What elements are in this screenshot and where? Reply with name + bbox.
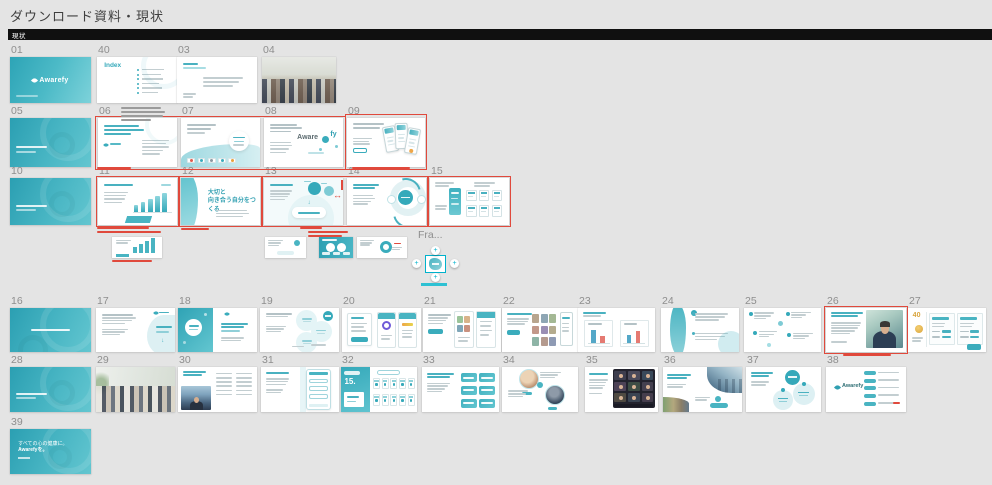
text-line — [216, 377, 232, 378]
banner-shape — [116, 254, 129, 257]
text-line — [751, 384, 766, 386]
text-line — [463, 402, 474, 404]
group-photo — [96, 386, 175, 412]
frame-label[interactable]: 17 — [97, 295, 109, 307]
slide-thumbnail[interactable] — [342, 308, 421, 352]
decor-dot — [183, 341, 186, 344]
slide-thumbnail[interactable] — [10, 118, 91, 167]
text-line — [942, 336, 951, 339]
frame-label[interactable]: 36 — [664, 354, 676, 366]
text-line — [266, 384, 286, 386]
cta-button — [428, 329, 444, 334]
slide-thumbnail[interactable] — [261, 367, 339, 412]
canvas-frame-03[interactable]: 03 — [177, 57, 257, 103]
text-line — [216, 373, 232, 374]
photo-tile — [457, 325, 463, 332]
slide-thumbnail[interactable] — [10, 178, 91, 225]
selected-frame-name[interactable] — [421, 283, 447, 286]
video-toolbar — [614, 404, 653, 407]
add-frame-handle-bottom[interactable]: + — [431, 273, 440, 282]
annotation-text[interactable] — [181, 228, 261, 244]
text-line — [932, 326, 943, 328]
canvas-frame-27[interactable]: 2740 — [908, 308, 986, 352]
video-tile — [614, 393, 626, 403]
annotation-red-box[interactable] — [262, 176, 428, 227]
cta-tile — [461, 386, 477, 395]
annotation-line — [308, 231, 348, 233]
annotation-text[interactable] — [843, 354, 923, 370]
text-line — [540, 374, 558, 376]
text-line — [183, 63, 197, 65]
frame-label[interactable]: 22 — [503, 295, 515, 307]
text-line — [878, 387, 899, 389]
canvas-title[interactable]: ダウンロード資料・現状 — [10, 6, 164, 25]
frame-label[interactable]: 32 — [342, 354, 354, 366]
frame-label[interactable]: 31 — [262, 354, 274, 366]
text-line — [589, 382, 607, 384]
text-line — [381, 338, 390, 340]
annotation-red-box[interactable] — [428, 176, 511, 227]
canvas-frame-35[interactable]: 35 — [585, 367, 658, 412]
text-line — [410, 383, 413, 386]
text-line — [878, 394, 899, 396]
canvas-frame-30[interactable]: 30 — [178, 367, 257, 412]
note-dot — [767, 343, 771, 347]
photo-tile — [532, 326, 539, 335]
text-line — [463, 377, 474, 379]
text-line — [16, 151, 35, 153]
decor-dot — [537, 382, 543, 388]
text-line — [302, 340, 313, 342]
canvas-frame-38[interactable]: 38Awarefy — [826, 367, 906, 412]
chart-card — [584, 320, 613, 346]
leaf-pattern-ring — [49, 191, 75, 217]
annotation-text[interactable] — [97, 167, 177, 183]
slide-thumbnail[interactable] — [178, 308, 257, 352]
frame-label[interactable]: 10 — [11, 165, 23, 177]
slide-thumbnail[interactable] — [260, 308, 339, 352]
photo-tile — [457, 316, 463, 323]
text-line — [589, 385, 605, 387]
logo-row: Awarefy — [10, 74, 91, 86]
blob-shape: ↓ — [147, 315, 175, 352]
bar-chart-bar — [145, 241, 149, 253]
pill — [343, 252, 350, 255]
text-line — [221, 326, 245, 328]
list-tag — [864, 386, 876, 390]
slide-thumbnail[interactable] — [10, 367, 91, 412]
text-line — [236, 377, 252, 378]
frame-label[interactable]: 33 — [423, 354, 435, 366]
ui-row — [309, 379, 328, 384]
bullet-dot — [137, 69, 139, 71]
chart-axis — [588, 343, 610, 344]
decor-ring — [141, 57, 177, 89]
text-line — [458, 340, 469, 342]
text-line — [427, 376, 450, 378]
text-line — [393, 399, 396, 402]
annotation-text[interactable] — [112, 260, 192, 276]
decor-dot — [294, 240, 300, 246]
canvas-frame-24[interactable]: 24 — [661, 308, 739, 352]
annotation-line — [97, 167, 131, 169]
text-line — [428, 323, 444, 325]
text-line — [102, 329, 129, 331]
photo-tile — [541, 337, 548, 346]
text-line — [779, 401, 787, 402]
canvas-frame-28[interactable]: 28 — [10, 367, 91, 412]
text-line — [360, 244, 370, 246]
video-call-window — [613, 369, 655, 409]
person-face — [646, 385, 650, 389]
text-line — [268, 240, 283, 242]
canvas-frame-18[interactable]: 18 — [178, 308, 257, 352]
slide-thumbnail[interactable] — [178, 367, 257, 412]
note-dot — [749, 312, 753, 316]
stat-mini-card — [382, 394, 389, 406]
text-line — [384, 399, 387, 402]
text-line — [507, 323, 525, 325]
cta-tile — [461, 399, 477, 408]
phone-mockup — [398, 312, 417, 348]
cta-tile — [461, 373, 477, 382]
text-line — [960, 326, 971, 328]
frame-label[interactable]: 04 — [263, 44, 275, 56]
canvas-frame-05[interactable]: 05 — [10, 118, 91, 167]
canvas-frame-31[interactable]: 31 — [261, 367, 339, 412]
form-card — [347, 313, 372, 346]
frame-label[interactable]: Fra... — [418, 229, 443, 241]
annotation-text[interactable] — [352, 167, 432, 183]
annotation-text[interactable] — [97, 227, 177, 243]
text-line — [970, 330, 979, 333]
person-face — [646, 396, 650, 400]
figma-canvas[interactable]: ダウンロード資料・現状 現状 01Awarefy40Index030405060… — [0, 0, 992, 485]
add-frame-handle-right[interactable]: + — [450, 259, 459, 268]
awarefy-logo-icon — [225, 312, 231, 318]
avatar-photo — [519, 369, 539, 389]
text-line — [893, 402, 899, 404]
note-dot — [778, 321, 783, 326]
frame-label[interactable]: 25 — [745, 295, 757, 307]
canvas-frame-25[interactable]: 25 — [744, 308, 821, 352]
name-pill — [548, 407, 558, 410]
text-line — [351, 323, 367, 325]
text-line — [751, 372, 774, 374]
text-line — [912, 340, 921, 342]
person-face — [632, 374, 636, 378]
text-line — [236, 390, 252, 391]
text-line — [216, 381, 232, 382]
slide-thumbnail[interactable]: すべての心の健康に。Awarefyを。 — [10, 429, 91, 474]
canvas-frame-16[interactable]: 16 — [10, 308, 91, 352]
price-card — [929, 313, 955, 345]
canvas-frame-10[interactable]: 10 — [10, 178, 91, 225]
canvas-frame-19[interactable]: 19 — [260, 308, 339, 352]
decor-circle — [718, 331, 739, 352]
text-line — [325, 315, 331, 317]
slide-thumbnail[interactable] — [744, 308, 821, 352]
slide-thumbnail[interactable] — [177, 57, 257, 103]
stat-panel: 15. — [341, 367, 370, 412]
add-frame-handle-top[interactable]: + — [431, 246, 440, 255]
bullet-dot — [137, 92, 139, 94]
frame-label[interactable]: 03 — [178, 44, 190, 56]
text-line — [428, 320, 447, 322]
text-line — [266, 389, 283, 391]
cta-button — [967, 344, 981, 350]
text-line — [624, 323, 638, 325]
canvas-frame-40[interactable]: 40Index — [97, 57, 177, 103]
section-label: 現状 — [8, 30, 26, 40]
canvas-frame-36[interactable]: 36 — [663, 367, 742, 412]
text-line — [427, 383, 450, 385]
person-photo — [181, 386, 211, 410]
text-line — [142, 92, 158, 94]
text-line — [216, 394, 232, 395]
annotation-red-box[interactable] — [95, 116, 346, 170]
text-line — [932, 336, 940, 338]
text-line — [751, 375, 769, 377]
closing-line2: Awarefyを。 — [18, 446, 47, 453]
text-line — [16, 146, 47, 148]
frame-label[interactable]: 34 — [503, 354, 515, 366]
frame-label[interactable]: 21 — [424, 295, 436, 307]
text-line — [791, 317, 802, 318]
slide-thumbnail[interactable] — [578, 308, 655, 352]
text-line — [507, 321, 528, 323]
canvas-frame-33[interactable]: 33 — [422, 367, 499, 412]
stat-mini-card — [399, 394, 406, 406]
slide-thumbnail[interactable]: Awarefy — [826, 367, 906, 412]
text-line — [374, 396, 378, 398]
photo-tile — [549, 326, 556, 335]
person-face — [619, 374, 623, 378]
price-card — [957, 313, 983, 345]
text-line — [409, 396, 413, 398]
slide-thumbnail[interactable]: 15. — [341, 367, 417, 412]
pill-outline — [377, 370, 400, 375]
annotation-red-box[interactable] — [824, 306, 908, 354]
donut-chart — [382, 321, 391, 330]
phone-mockup — [377, 312, 396, 348]
annotation-red-box[interactable] — [96, 176, 179, 227]
decor-dot — [802, 382, 806, 386]
text-line — [960, 336, 968, 338]
frame-label[interactable]: 35 — [586, 354, 598, 366]
annotation-red-box[interactable] — [345, 114, 427, 170]
slide-thumbnail[interactable] — [661, 308, 739, 352]
slide-thumbnail[interactable] — [663, 367, 742, 412]
text-line — [159, 312, 168, 314]
cta-tile — [479, 386, 495, 395]
text-line — [392, 249, 400, 250]
text-line — [695, 399, 708, 401]
text-line — [266, 331, 282, 333]
note-dot — [787, 333, 791, 337]
canvas-frame-23[interactable]: 23 — [578, 308, 655, 352]
text-line — [751, 381, 769, 383]
text-line — [562, 323, 569, 324]
text-line — [754, 315, 771, 317]
text-line — [347, 401, 356, 403]
text-line — [393, 383, 396, 386]
text-line — [402, 333, 412, 335]
photo-tile — [532, 337, 539, 346]
bullet-dot — [137, 74, 139, 76]
text-line — [316, 330, 327, 332]
cta-button — [507, 330, 521, 335]
selected-frame-thumbnail[interactable] — [426, 256, 445, 272]
frame-label[interactable]: 19 — [261, 295, 273, 307]
diagram-circle — [326, 243, 335, 252]
text-line — [589, 393, 602, 394]
cta-tile — [479, 373, 495, 382]
video-tile — [628, 371, 640, 381]
annotation-line — [181, 228, 209, 230]
text-line — [302, 318, 313, 320]
frame-label[interactable]: 23 — [579, 295, 591, 307]
stat-card — [344, 392, 364, 406]
slide-thumbnail[interactable] — [10, 308, 91, 352]
text-line — [589, 373, 608, 375]
text-line — [266, 378, 289, 380]
bullet-dot — [137, 78, 139, 80]
slide-thumbnail[interactable] — [502, 308, 578, 352]
slide-thumbnail[interactable] — [262, 57, 336, 103]
phone-header — [399, 313, 416, 319]
text-line — [400, 396, 404, 398]
arrow-down-icon: ↓ — [161, 338, 164, 344]
text-line — [427, 385, 449, 387]
stat-mini-card — [382, 378, 389, 390]
text-line — [236, 394, 252, 395]
slide-thumbnail[interactable] — [423, 308, 501, 352]
canvas-frame-04[interactable]: 04 — [262, 57, 336, 103]
text-line — [778, 398, 788, 400]
diagram-circle — [793, 383, 815, 405]
list-tag — [864, 394, 876, 398]
canvas-frame-29[interactable]: 29 — [96, 367, 175, 412]
text-line — [266, 328, 285, 330]
text-line — [16, 393, 47, 395]
text-line — [183, 93, 196, 95]
text-line — [375, 383, 378, 386]
stat-mini-card — [399, 378, 406, 390]
leaf-pattern-ring — [48, 445, 72, 469]
text-line — [16, 209, 35, 211]
text-line — [791, 314, 806, 316]
canvas-frame-32[interactable]: 3215. — [341, 367, 417, 412]
text-line — [583, 315, 601, 317]
section-bar[interactable]: 現状 — [8, 29, 992, 40]
text-line — [589, 387, 604, 389]
text-line — [351, 330, 366, 332]
frame-label[interactable]: 28 — [11, 354, 23, 366]
text-line — [351, 317, 365, 319]
slide-thumbnail[interactable]: Index — [97, 57, 177, 103]
phone-mockup — [560, 312, 573, 345]
frame-label[interactable]: 24 — [662, 295, 674, 307]
slide-thumbnail[interactable] — [502, 367, 578, 412]
canvas-frame-17[interactable]: 17↓ — [96, 308, 175, 352]
text-line — [912, 337, 923, 339]
slide-thumbnail[interactable]: Awarefy — [10, 57, 91, 103]
person-face — [632, 385, 636, 389]
annotation-red-box[interactable] — [179, 176, 262, 227]
canvas-frame-20[interactable]: 20 — [342, 308, 421, 352]
text-line — [695, 397, 711, 399]
bullet-dot — [137, 87, 139, 89]
bar-chart-bar — [133, 247, 137, 253]
frame-label[interactable]: 27 — [909, 295, 921, 307]
frame-label[interactable]: 20 — [343, 295, 355, 307]
frame-label[interactable]: 39 — [11, 416, 23, 428]
frame-label[interactable]: 29 — [97, 354, 109, 366]
bar-chart-bar — [636, 331, 640, 344]
swap-arrow-icon[interactable]: ↔ — [333, 190, 342, 200]
frame-label[interactable]: 30 — [179, 354, 191, 366]
slide-thumbnail[interactable] — [422, 367, 499, 412]
canvas-frame-39[interactable]: 39すべての心の健康に。Awarefyを。 — [10, 429, 91, 474]
text-line — [481, 389, 492, 391]
text-line — [427, 391, 442, 393]
text-line — [878, 372, 899, 374]
text-line — [236, 373, 252, 374]
text-line — [266, 381, 288, 383]
frame-label[interactable]: 18 — [179, 295, 191, 307]
canvas-frame-22[interactable]: 22 — [502, 308, 578, 352]
annotation-line — [300, 227, 322, 229]
canvas-frame-37[interactable]: 37 — [746, 367, 821, 412]
slide-thumbnail[interactable] — [96, 367, 175, 412]
text-line — [754, 318, 766, 319]
slide-thumbnail[interactable]: 40 — [908, 308, 986, 352]
ui-row — [309, 394, 328, 399]
annotation-text[interactable] — [121, 107, 201, 123]
frame-label[interactable]: 16 — [11, 295, 23, 307]
slide-thumbnail[interactable] — [746, 367, 821, 412]
text-line — [16, 95, 37, 97]
canvas-frame-01[interactable]: 01Awarefy — [10, 57, 91, 103]
text-line — [759, 334, 774, 336]
slide-thumbnail[interactable]: ↓ — [96, 308, 175, 352]
buildings — [718, 379, 742, 393]
photo-tile — [464, 325, 470, 332]
decor-dot — [781, 388, 785, 392]
text-line — [236, 381, 252, 382]
slide-thumbnail[interactable] — [585, 367, 658, 412]
pill — [322, 252, 329, 255]
canvas-frame-21[interactable]: 21 — [423, 308, 501, 352]
frame-label[interactable]: 05 — [11, 105, 23, 117]
annotation-text[interactable] — [300, 227, 380, 243]
frame-label[interactable]: 40 — [98, 44, 110, 56]
canvas-frame-34[interactable]: 34 — [502, 367, 578, 412]
video-tile — [628, 382, 640, 392]
annotation-line — [121, 111, 165, 113]
text-line — [221, 340, 242, 342]
stat-mini-card — [408, 394, 415, 406]
add-frame-handle-left[interactable]: + — [412, 259, 421, 268]
frame-label[interactable]: 38 — [827, 354, 839, 366]
note-dot — [786, 312, 790, 316]
frame-label[interactable]: 01 — [11, 44, 23, 56]
annotation-mark[interactable] — [341, 180, 343, 190]
text-line — [381, 335, 392, 337]
frame-label[interactable]: 37 — [747, 354, 759, 366]
blob-shape — [670, 308, 686, 352]
